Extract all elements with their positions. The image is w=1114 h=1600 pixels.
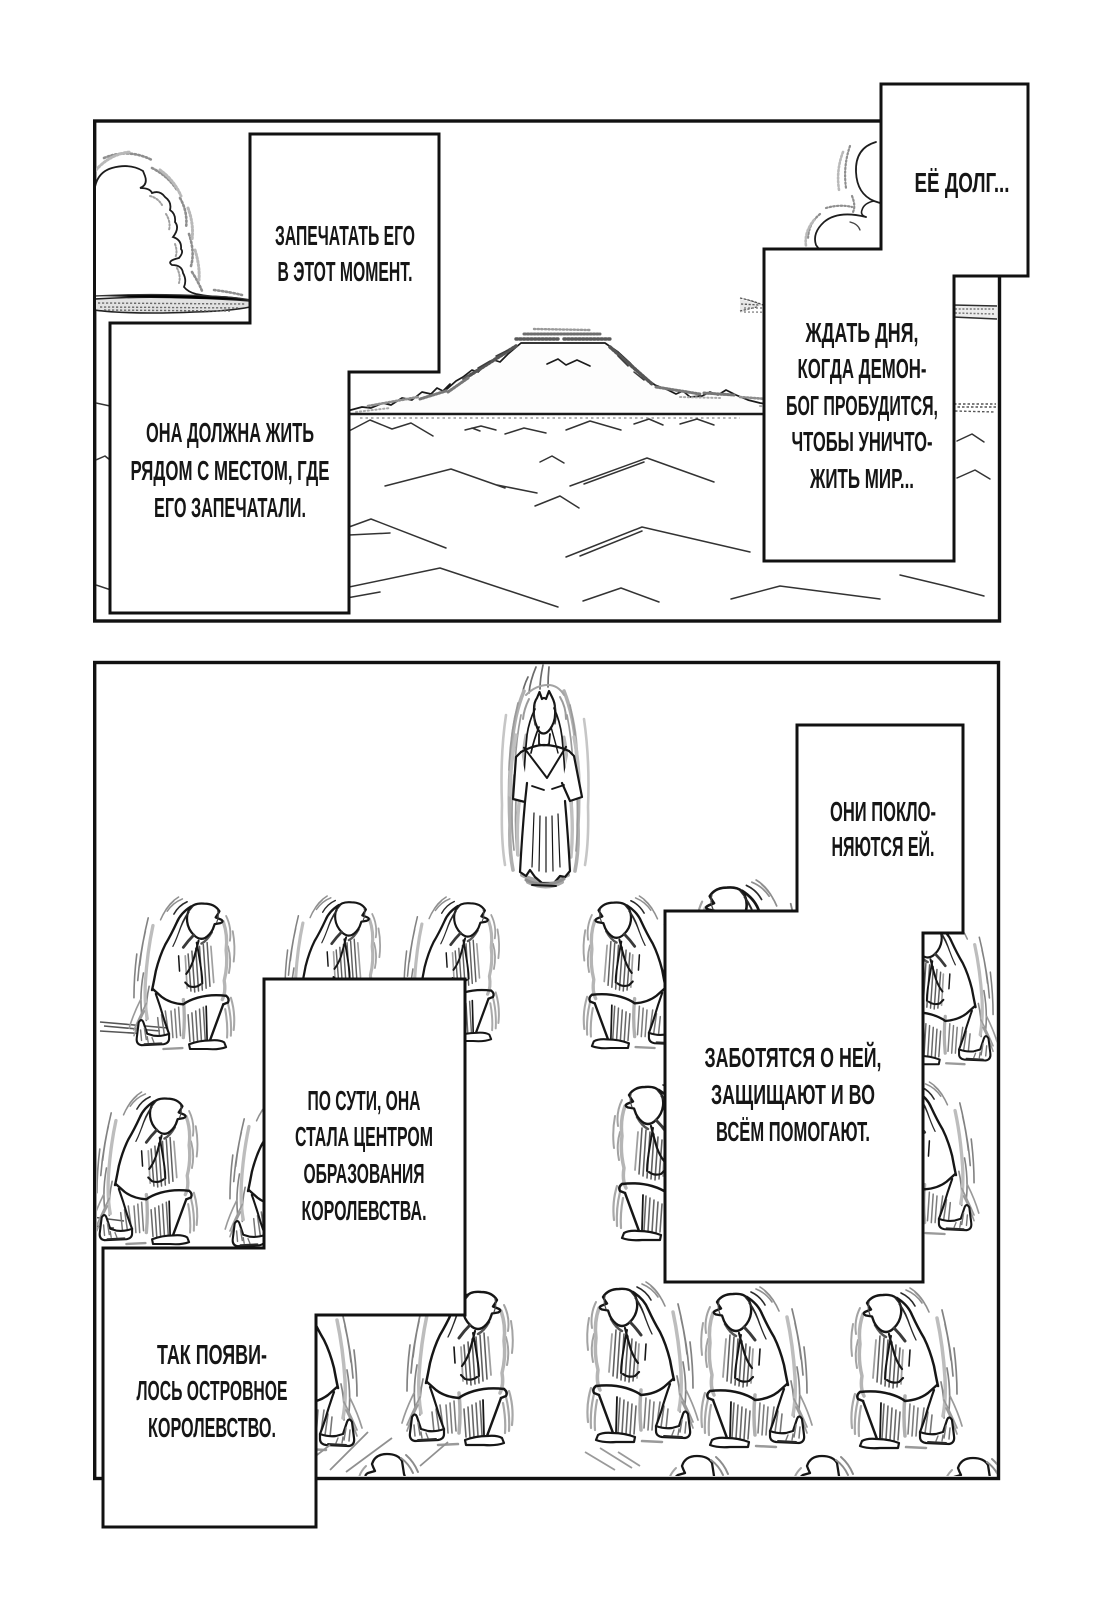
svg-text:ЖИТЬ МИР...: ЖИТЬ МИР... [809, 463, 914, 494]
svg-text:ЖДАТЬ ДНЯ,: ЖДАТЬ ДНЯ, [805, 317, 919, 348]
svg-text:КОГДА ДЕМОН-: КОГДА ДЕМОН- [798, 353, 927, 384]
svg-text:ЗАПЕЧАТАТЬ ЕГО: ЗАПЕЧАТАТЬ ЕГО [275, 220, 415, 251]
svg-text:ПО СУТИ, ОНА: ПО СУТИ, ОНА [308, 1085, 421, 1116]
svg-text:БОГ ПРОБУДИТСЯ,: БОГ ПРОБУДИТСЯ, [786, 390, 938, 421]
svg-text:ЕЁ ДОЛГ...: ЕЁ ДОЛГ... [915, 167, 1010, 198]
svg-text:КОРОЛЕВСТВА.: КОРОЛЕВСТВА. [302, 1195, 427, 1226]
svg-text:ЗАБОТЯТСЯ О НЕЙ,: ЗАБОТЯТСЯ О НЕЙ, [705, 1041, 882, 1073]
svg-text:НЯЮТСЯ ЕЙ.: НЯЮТСЯ ЕЙ. [832, 830, 935, 862]
svg-text:ЧТОБЫ УНИЧТО-: ЧТОБЫ УНИЧТО- [792, 426, 933, 457]
svg-text:ЕГО ЗАПЕЧАТАЛИ.: ЕГО ЗАПЕЧАТАЛИ. [154, 492, 306, 523]
svg-text:КОРОЛЕВСТВО.: КОРОЛЕВСТВО. [148, 1412, 276, 1443]
svg-text:ОБРАЗОВАНИЯ: ОБРАЗОВАНИЯ [304, 1158, 425, 1189]
svg-text:В ЭТОТ МОМЕНТ.: В ЭТОТ МОМЕНТ. [278, 256, 413, 287]
svg-text:ЗАЩИЩАЮТ И ВО: ЗАЩИЩАЮТ И ВО [711, 1079, 875, 1110]
svg-text:ОНИ ПОКЛО-: ОНИ ПОКЛО- [830, 796, 936, 827]
svg-text:СТАЛА ЦЕНТРОМ: СТАЛА ЦЕНТРОМ [295, 1121, 433, 1152]
svg-text:ВСЁМ ПОМОГАЮТ.: ВСЁМ ПОМОГАЮТ. [716, 1116, 870, 1147]
svg-text:ЛОСЬ ОСТРОВНОЕ: ЛОСЬ ОСТРОВНОЕ [137, 1375, 288, 1406]
svg-text:ТАК ПОЯВИ-: ТАК ПОЯВИ- [157, 1339, 267, 1370]
svg-text:ОНА ДОЛЖНА ЖИТЬ: ОНА ДОЛЖНА ЖИТЬ [146, 417, 314, 448]
svg-text:РЯДОМ С МЕСТОМ, ГДЕ: РЯДОМ С МЕСТОМ, ГДЕ [131, 455, 330, 486]
